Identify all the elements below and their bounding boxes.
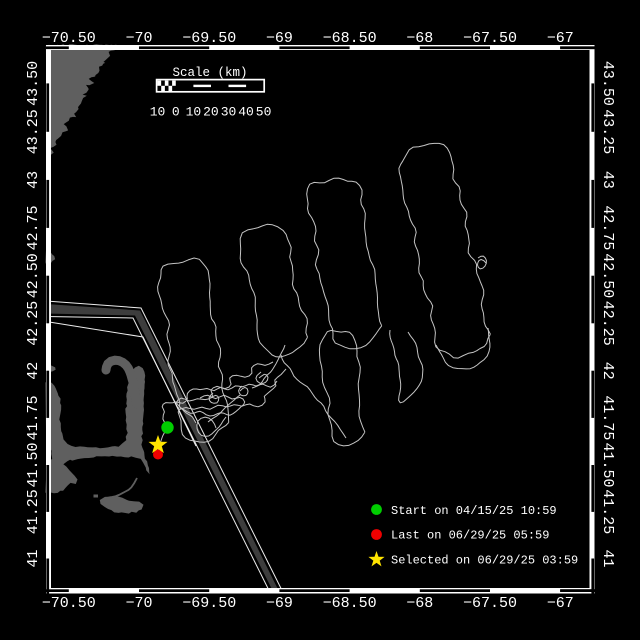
- svg-text:−68: −68: [406, 30, 433, 47]
- svg-text:−68.50: −68.50: [323, 30, 377, 47]
- svg-text:−68.50: −68.50: [323, 595, 377, 612]
- svg-text:41.50: 41.50: [25, 442, 42, 487]
- svg-text:42: 42: [599, 362, 616, 380]
- svg-text:43.25: 43.25: [599, 109, 616, 154]
- svg-text:41.75: 41.75: [599, 395, 616, 440]
- svg-text:−70.50: −70.50: [42, 30, 96, 47]
- svg-text:42.25: 42.25: [25, 301, 42, 346]
- svg-text:42.75: 42.75: [25, 205, 42, 250]
- svg-text:41.50: 41.50: [599, 442, 616, 487]
- svg-text:41.75: 41.75: [25, 395, 42, 440]
- svg-text:−69: −69: [266, 595, 293, 612]
- svg-text:43: 43: [25, 171, 42, 189]
- svg-text:−69: −69: [266, 30, 293, 47]
- svg-text:−70: −70: [125, 30, 152, 47]
- svg-text:10: 10: [150, 105, 166, 120]
- svg-text:42.50: 42.50: [25, 253, 42, 298]
- svg-text:43.50: 43.50: [599, 61, 616, 106]
- svg-text:42: 42: [25, 362, 42, 380]
- svg-text:−67: −67: [547, 30, 574, 47]
- svg-text:42.50: 42.50: [599, 253, 616, 298]
- svg-text:−69.50: −69.50: [182, 595, 236, 612]
- svg-text:41.25: 41.25: [25, 489, 42, 534]
- svg-text:20: 20: [203, 105, 219, 120]
- svg-text:43: 43: [599, 171, 616, 189]
- svg-text:−67.50: −67.50: [463, 595, 517, 612]
- svg-text:−67.50: −67.50: [463, 30, 517, 47]
- svg-text:Selected on 06/29/25 03:59: Selected on 06/29/25 03:59: [391, 553, 578, 567]
- svg-text:41: 41: [25, 549, 42, 567]
- svg-text:42.25: 42.25: [599, 301, 616, 346]
- svg-text:−69.50: −69.50: [182, 30, 236, 47]
- svg-text:41.25: 41.25: [599, 489, 616, 534]
- svg-text:Scale (km): Scale (km): [172, 66, 247, 80]
- svg-text:−68: −68: [406, 595, 433, 612]
- svg-text:50: 50: [256, 105, 272, 120]
- svg-text:−70.50: −70.50: [42, 595, 96, 612]
- svg-text:0: 0: [172, 105, 180, 120]
- svg-text:43.25: 43.25: [25, 109, 42, 154]
- svg-text:42.75: 42.75: [599, 205, 616, 250]
- svg-text:43.50: 43.50: [25, 61, 42, 106]
- svg-text:41: 41: [599, 549, 616, 567]
- svg-text:40: 40: [238, 105, 254, 120]
- svg-text:10: 10: [186, 105, 202, 120]
- svg-text:30: 30: [221, 105, 237, 120]
- svg-text:Last on 06/29/25 05:59: Last on 06/29/25 05:59: [391, 529, 549, 543]
- svg-text:−67: −67: [547, 595, 574, 612]
- svg-text:−70: −70: [125, 595, 152, 612]
- svg-text:Start on 04/15/25 10:59: Start on 04/15/25 10:59: [391, 504, 557, 518]
